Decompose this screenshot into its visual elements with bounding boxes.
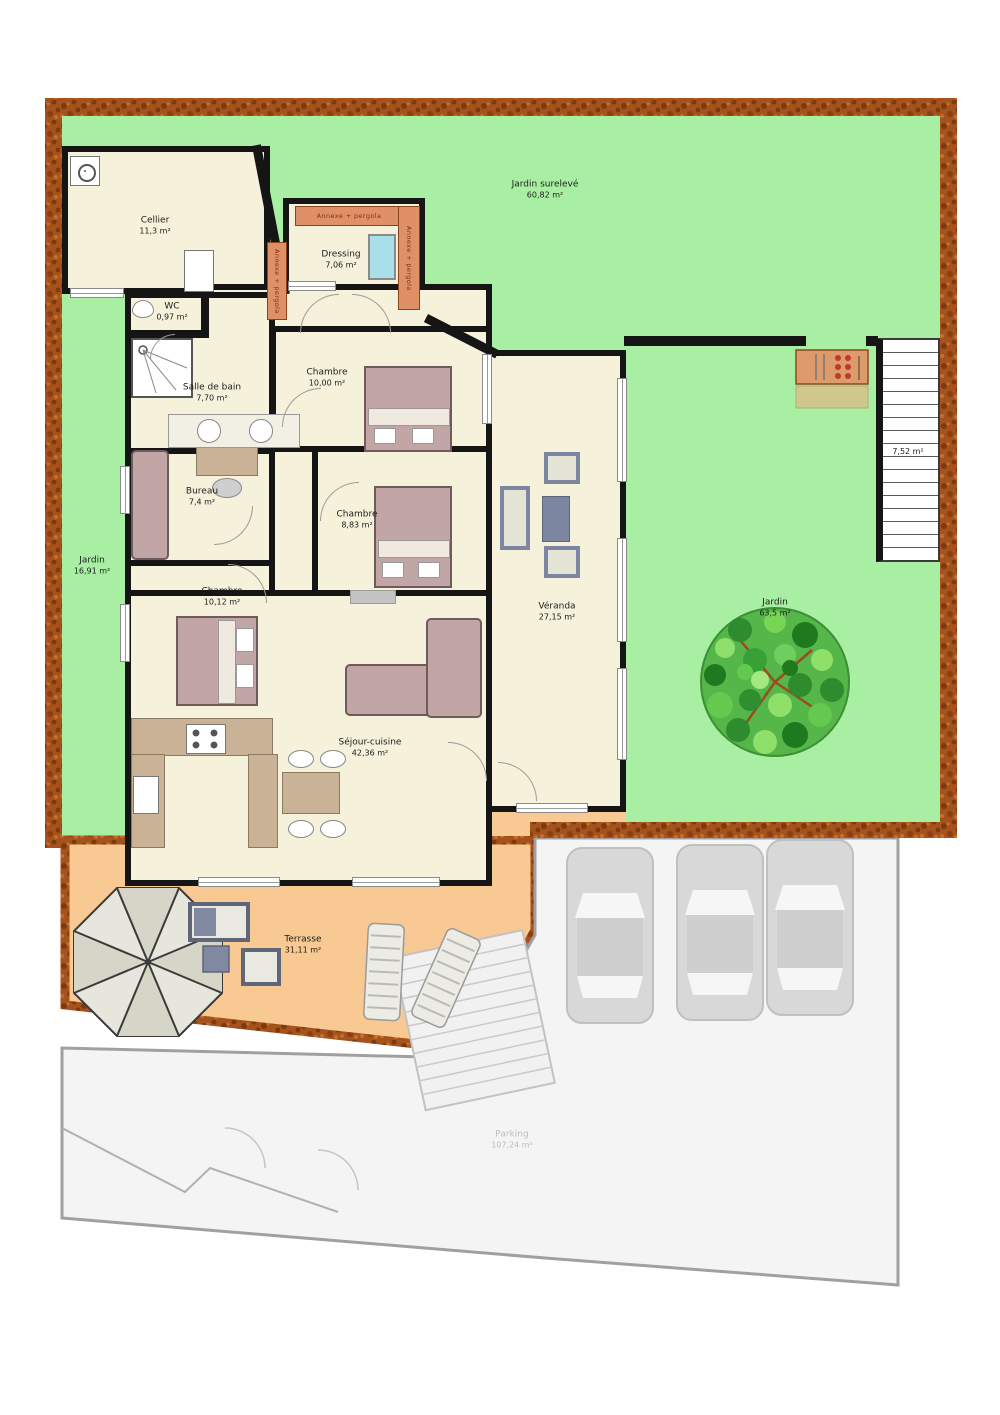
wc-wall-right <box>201 292 209 338</box>
floor-plan: Annexe + pergola Annexe + pergola Annexe… <box>0 0 1000 1415</box>
car-2 <box>677 845 763 1020</box>
pergola-strip-top: Annexe + pergola <box>295 206 403 226</box>
sun-lounger-1 <box>364 923 405 1021</box>
terrace-table-large <box>190 904 248 940</box>
hedge-right <box>940 98 957 834</box>
veranda-chair-1 <box>544 452 580 484</box>
pergola-strip-right: Annexe + pergola <box>398 206 420 310</box>
hedge-left <box>45 98 62 848</box>
car-1 <box>567 848 653 1023</box>
corridor <box>269 446 318 596</box>
pergola-label-left: Annexe + pergola <box>273 249 281 314</box>
desk-icon <box>196 446 258 476</box>
label-cellier: Cellier11,3 m² <box>139 215 170 236</box>
window-veranda-2 <box>617 538 627 642</box>
dining-chair-4 <box>320 820 346 838</box>
label-escalier: 7,52 m² <box>892 447 923 457</box>
window-cellier <box>70 288 124 298</box>
label-salle-de-bain: Salle de bain7,70 m² <box>183 382 241 403</box>
label-jardin-est: Jardin63,5 m² <box>759 597 790 618</box>
window-chambre-3 <box>120 604 130 662</box>
dining-table <box>282 772 340 814</box>
terrace-table-small <box>243 950 279 984</box>
window-bureau <box>120 466 130 514</box>
garden-wall <box>624 336 806 346</box>
pergola-label-top: Annexe + pergola <box>317 212 382 220</box>
terrace-seat <box>203 946 229 972</box>
bed-chambre-2 <box>374 486 452 588</box>
label-chambre-1: Chambre10,00 m² <box>306 367 347 388</box>
window-sejour-2 <box>352 877 440 887</box>
barbecue-mat <box>796 386 868 408</box>
pergola-strip-left: Annexe + pergola <box>267 242 287 320</box>
stove-icon <box>186 724 226 754</box>
vanity-icon <box>168 414 300 448</box>
label-wc: WC0,97 m² <box>156 301 187 322</box>
label-jardin-sureleve: Jardin surelevé60,82 m² <box>512 179 579 200</box>
label-bureau: Bureau7,4 m² <box>186 486 218 507</box>
bed-chambre-3 <box>176 616 258 706</box>
window-sejour-1 <box>198 877 280 887</box>
label-parking: Parking107,24 m² <box>491 1129 533 1150</box>
barbecue-icon <box>796 350 868 408</box>
dining-chair-1 <box>288 750 314 768</box>
window-hall <box>288 281 336 291</box>
label-veranda: Véranda27,15 m² <box>538 601 575 622</box>
label-chambre-3: Chambre10,12 m² <box>201 586 242 607</box>
washing-machine-icon <box>70 156 100 186</box>
fridge-icon <box>133 776 159 814</box>
window-veranda-3 <box>617 668 627 760</box>
window-veranda-1 <box>617 378 627 482</box>
bureau-sofa <box>131 450 169 560</box>
window-veranda-south <box>516 803 588 813</box>
hedge-bottom-right <box>530 822 957 838</box>
living-sofa-vertical <box>426 618 482 718</box>
bed-chambre-1 <box>364 366 452 452</box>
label-sejour-cuisine: Séjour-cuisine42,36 m² <box>339 737 402 758</box>
label-jardin-ouest: Jardin16,91 m² <box>74 555 110 576</box>
veranda-bench <box>500 486 530 550</box>
toilet-icon <box>132 300 154 318</box>
bedside-rug <box>350 590 396 604</box>
tree-icon <box>701 608 849 756</box>
pergola-label-right: Annexe + pergola <box>405 226 413 291</box>
label-terrasse: Terrasse31,11 m² <box>284 934 321 955</box>
veranda-chair-2 <box>544 546 580 578</box>
label-dressing: Dressing7,06 m² <box>321 249 360 270</box>
kitchen-counter-right <box>248 754 278 848</box>
water-heater-icon <box>184 250 214 292</box>
label-chambre-2: Chambre8,83 m² <box>336 509 377 530</box>
window-chambre-1 <box>482 354 492 424</box>
veranda-table <box>542 496 570 542</box>
dressing-skylight <box>368 234 396 280</box>
room-veranda <box>486 350 626 812</box>
car-3 <box>767 840 853 1015</box>
dining-chair-3 <box>288 820 314 838</box>
hedge-top <box>45 98 957 116</box>
